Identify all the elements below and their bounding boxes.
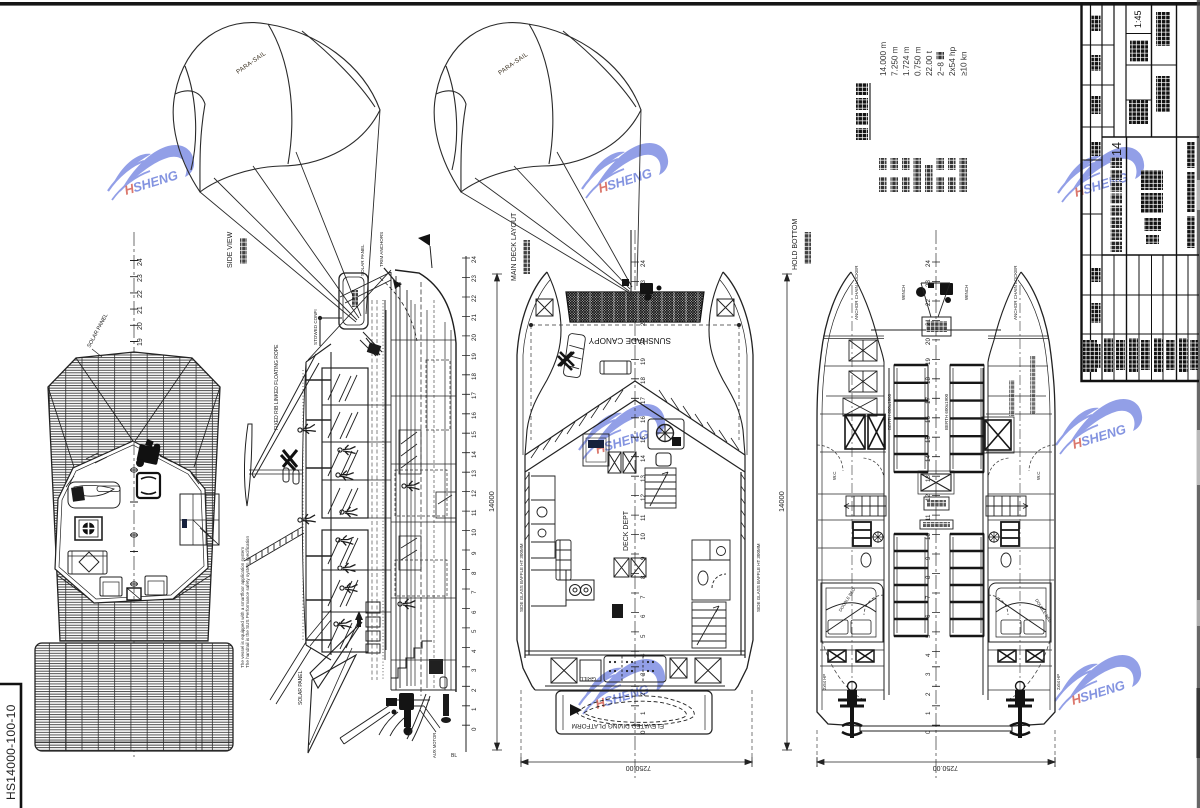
- svg-text:2: 2: [471, 688, 478, 692]
- svg-text:SIDE GLASS BAFFLE HT 300MM: SIDE GLASS BAFFLE HT 300MM: [756, 543, 761, 612]
- svg-text:14.000 m: 14.000 m: [879, 42, 888, 76]
- svg-text:AUX MOTOR: AUX MOTOR: [432, 733, 437, 758]
- svg-text:SUNSHADE CANOPY: SUNSHADE CANOPY: [588, 336, 671, 345]
- svg-text:12: 12: [471, 490, 478, 497]
- svg-text:10: 10: [640, 533, 647, 540]
- svg-text:GRILL: GRILL: [580, 675, 596, 681]
- svg-text:≥10 kn: ≥10 kn: [960, 51, 969, 76]
- svg-text:0: 0: [471, 727, 478, 731]
- svg-text:W.C: W.C: [1036, 471, 1041, 480]
- svg-text:17: 17: [471, 392, 478, 399]
- svg-text:14000: 14000: [777, 491, 786, 512]
- svg-text:21: 21: [471, 314, 478, 321]
- svg-text:23: 23: [471, 275, 478, 282]
- svg-text:ANCHOR CHAIN LOCKER: ANCHOR CHAIN LOCKER: [1013, 265, 1018, 320]
- svg-text:6: 6: [640, 614, 647, 618]
- svg-text:BERTH 600x1900: BERTH 600x1900: [944, 393, 949, 430]
- svg-text:7.250 m: 7.250 m: [891, 46, 900, 76]
- svg-text:22: 22: [137, 290, 144, 298]
- svg-text:SIDE GLASS BAFFLE HT 300MM: SIDE GLASS BAFFLE HT 300MM: [519, 543, 524, 612]
- svg-text:2: 2: [640, 692, 647, 696]
- svg-text:17: 17: [640, 397, 647, 404]
- svg-text:BERTH 600x1900: BERTH 600x1900: [887, 393, 892, 430]
- svg-text:SIDE VIEW: SIDE VIEW: [227, 231, 234, 268]
- svg-text:22: 22: [471, 295, 478, 302]
- svg-text:16: 16: [471, 412, 478, 419]
- svg-text:22.00 t: 22.00 t: [925, 50, 934, 76]
- svg-text:3: 3: [925, 672, 932, 676]
- svg-text:21: 21: [137, 306, 144, 314]
- svg-text:12: 12: [640, 494, 647, 501]
- svg-text:2x54 hp: 2x54 hp: [948, 46, 957, 76]
- svg-text:24: 24: [640, 260, 647, 267]
- svg-text:3: 3: [471, 668, 478, 672]
- svg-text:7: 7: [640, 595, 647, 599]
- svg-text:1: 1: [640, 711, 647, 715]
- svg-text:10: 10: [471, 529, 478, 536]
- svg-text:14: 14: [471, 451, 478, 458]
- svg-text:14: 14: [1110, 142, 1124, 156]
- svg-text:6: 6: [471, 610, 478, 614]
- svg-text:18: 18: [471, 373, 478, 380]
- svg-text:2x54 HP: 2x54 HP: [1056, 674, 1061, 690]
- svg-text:19: 19: [137, 338, 144, 346]
- svg-text:5: 5: [640, 634, 647, 638]
- svg-text:1: 1: [925, 711, 932, 715]
- svg-text:The handrail is the SUS Perfor: The handrail is the SUS Performance safe…: [245, 536, 250, 668]
- svg-text:24: 24: [137, 258, 144, 266]
- svg-text:16: 16: [640, 416, 647, 423]
- svg-text:19: 19: [640, 358, 647, 365]
- svg-text:11: 11: [471, 509, 478, 516]
- svg-text:DECK DEPT: DECK DEPT: [623, 510, 630, 551]
- svg-text:WINCH: WINCH: [901, 285, 906, 300]
- svg-text:SOLAR PANEL: SOLAR PANEL: [360, 244, 365, 276]
- svg-text:2: 2: [925, 692, 932, 696]
- svg-text:ANCHOR CHAIN LOCKER: ANCHOR CHAIN LOCKER: [854, 265, 859, 320]
- svg-text:9: 9: [471, 551, 478, 555]
- svg-text:4: 4: [925, 653, 932, 657]
- svg-text:19: 19: [471, 353, 478, 360]
- svg-text:W.C: W.C: [832, 471, 837, 480]
- svg-text:15: 15: [640, 436, 647, 443]
- svg-text:STOWED CONFI: STOWED CONFI: [313, 309, 318, 345]
- svg-text:3: 3: [640, 672, 647, 676]
- svg-text:14000: 14000: [487, 491, 496, 512]
- svg-text:20: 20: [925, 338, 932, 345]
- svg-text:18: 18: [640, 377, 647, 384]
- svg-text:4: 4: [471, 649, 478, 653]
- svg-text:7250.00: 7250.00: [933, 764, 958, 771]
- svg-text:20: 20: [137, 322, 144, 330]
- svg-text:11: 11: [640, 514, 647, 521]
- svg-text:13: 13: [640, 475, 647, 482]
- svg-text:7: 7: [471, 590, 478, 594]
- svg-text:FIXED RIB LINKED FLOATING ROPE: FIXED RIB LINKED FLOATING ROPE: [274, 344, 280, 430]
- svg-text:HOLD BOTTOM: HOLD BOTTOM: [792, 219, 799, 270]
- svg-text:8: 8: [471, 571, 478, 575]
- svg-text:15: 15: [471, 431, 478, 438]
- svg-text:5: 5: [471, 629, 478, 633]
- svg-text:1: 1: [471, 707, 478, 711]
- svg-text:1:45: 1:45: [1133, 10, 1143, 28]
- svg-text:14: 14: [640, 455, 647, 462]
- svg-text:24: 24: [925, 260, 932, 267]
- svg-text:20: 20: [471, 334, 478, 341]
- svg-text:SOLAR PANEL: SOLAR PANEL: [298, 670, 304, 705]
- svg-text:TRIM ANCHORS: TRIM ANCHORS: [379, 232, 384, 267]
- svg-text:ELEVATED DIVING PLATFORM: ELEVATED DIVING PLATFORM: [572, 722, 664, 729]
- svg-text:2~8: 2~8: [937, 62, 946, 76]
- svg-text:13: 13: [471, 470, 478, 477]
- svg-text:1.724 m: 1.724 m: [902, 46, 911, 76]
- svg-text:2x54 HP: 2x54 HP: [822, 674, 827, 690]
- svg-text:23: 23: [137, 274, 144, 282]
- svg-text:7250.00: 7250.00: [626, 764, 651, 771]
- svg-text:0.750 m: 0.750 m: [914, 46, 923, 76]
- svg-text:HS14000-100-10: HS14000-100-10: [4, 704, 18, 800]
- svg-text:MAIN DECK LAYOUT: MAIN DECK LAYOUT: [511, 212, 518, 281]
- svg-text:WINCH: WINCH: [964, 285, 969, 300]
- svg-text:24: 24: [471, 256, 478, 263]
- svg-text:BL: BL: [451, 753, 457, 759]
